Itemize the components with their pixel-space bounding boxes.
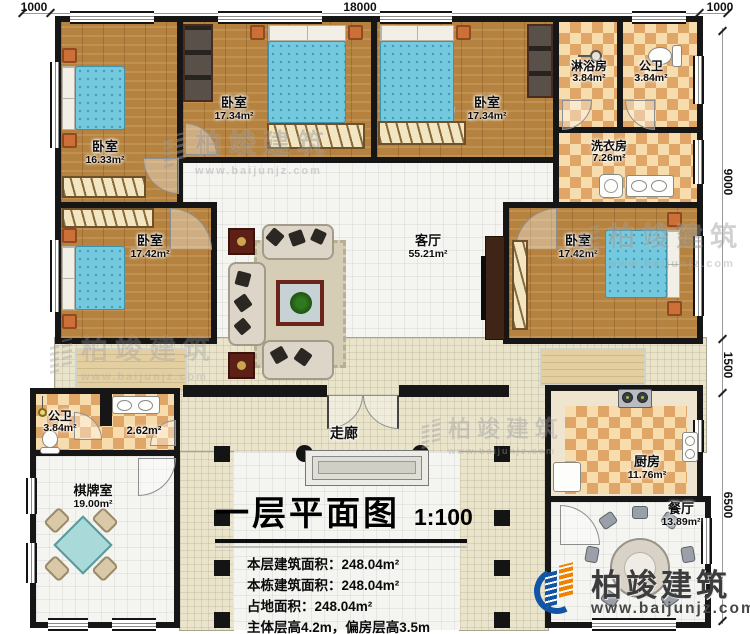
sink-basin (138, 400, 153, 411)
nightstand (456, 25, 471, 40)
tv-cabinet (485, 236, 505, 340)
title-rule-thin (215, 546, 467, 548)
window (693, 56, 704, 104)
nightstand (348, 25, 363, 40)
room-area: 16.33m² (60, 155, 150, 167)
title-block: 一层平面图 1:100 本层建筑面积：248.04m² 本栋建筑面积：248.0… (215, 486, 477, 634)
dimension-line-right (722, 28, 723, 624)
label-bedroom-top-right: 卧室 17.34m² (442, 96, 532, 122)
bed-pillows (62, 66, 75, 130)
side-table (228, 228, 255, 255)
plant (290, 292, 312, 314)
stat-building-area: 本栋建筑面积：248.04m² (247, 575, 477, 596)
nightstand (62, 228, 77, 243)
sink-basin (685, 436, 695, 446)
room-name: 餐厅 (638, 502, 724, 517)
window (218, 11, 322, 24)
label-bedroom-top-left: 卧室 16.33m² (60, 140, 150, 166)
dim-top-right: 1000 (700, 0, 740, 14)
window (380, 11, 452, 24)
room-area: 3.84m² (556, 73, 622, 85)
window (70, 11, 154, 24)
window (50, 240, 61, 312)
label-bath-left: 公卫 3.84m² (34, 410, 86, 435)
label-kitchen: 厨房 11.76m² (602, 455, 692, 481)
sink-basin (631, 180, 647, 192)
fridge (553, 462, 581, 492)
wardrobe (62, 176, 146, 198)
bed-pillows (667, 230, 680, 298)
window (48, 618, 88, 631)
toilet-tank (40, 447, 60, 454)
room-area: 3.84m² (621, 73, 681, 85)
stat-floor-area: 本层建筑面积：248.04m² (247, 554, 477, 575)
stove-burner (622, 392, 633, 403)
nightstand (667, 301, 682, 316)
bed-pillows (62, 246, 75, 310)
dim-right-9000: 9000 (721, 162, 735, 202)
stat-footprint-area: 占地面积：248.04m² (247, 596, 477, 617)
entry-step (318, 461, 416, 474)
brand-logo-icon (533, 562, 587, 622)
bed-pillows (268, 25, 346, 41)
room-name: 卧室 (60, 140, 150, 155)
room-name: 走廊 (315, 426, 373, 442)
room-area: 17.34m² (189, 111, 279, 123)
room-name: 卧室 (533, 234, 623, 249)
porch-column (214, 446, 230, 462)
wall-living-south-right (399, 385, 509, 397)
porch-column (494, 612, 510, 628)
nightstand (250, 25, 265, 40)
porch-column (494, 510, 510, 526)
label-bedroom-mid-left: 卧室 17.42m² (105, 234, 195, 260)
room-area: 11.76m² (602, 470, 692, 482)
logo-swoosh (528, 562, 586, 620)
room-area: 17.34m² (442, 111, 532, 123)
sink-basin (117, 400, 132, 411)
entry-steps (305, 450, 429, 486)
bed-mattress (75, 66, 125, 130)
label-shower: 淋浴房 3.84m² (556, 60, 622, 85)
label-dining: 餐厅 13.89m² (638, 502, 724, 528)
porch-column (494, 446, 510, 462)
title-rule-thick (215, 539, 467, 543)
terrace-deck-left (75, 348, 187, 392)
label-bedroom-top-middle: 卧室 17.34m² (189, 96, 279, 122)
room-area: 3.84m² (34, 423, 86, 435)
cabinet (527, 24, 553, 98)
nightstand (667, 212, 682, 227)
room-name: 棋牌室 (48, 484, 138, 499)
bed-mattress (268, 41, 346, 123)
window (693, 140, 704, 184)
tv (481, 256, 486, 320)
room-name: 卧室 (442, 96, 532, 111)
room-name: 客厅 (383, 234, 473, 249)
wardrobe (62, 208, 154, 228)
brand-url: www.baijunjz.com (591, 600, 750, 618)
nightstand (62, 314, 77, 329)
room-area: 13.89m² (638, 517, 724, 529)
room-area: 7.26m² (574, 153, 644, 165)
room-name: 卧室 (189, 96, 279, 111)
side-table (228, 352, 255, 379)
window (26, 543, 37, 583)
light-cord (42, 396, 43, 408)
window (693, 236, 704, 316)
label-corridor: 走廊 (315, 426, 373, 442)
room-area: 55.21m² (383, 249, 473, 261)
bed-pillows (380, 25, 454, 41)
label-living: 客厅 55.21m² (383, 234, 473, 260)
window (112, 618, 156, 631)
label-bedroom-mid-right: 卧室 17.42m² (533, 234, 623, 260)
stove-burner (637, 392, 648, 403)
logo-tower-orange (559, 562, 573, 597)
room-area: 2.62m² (118, 425, 170, 437)
room-area: 19.00m² (48, 499, 138, 511)
window (632, 11, 686, 24)
shower-arm (578, 55, 592, 57)
room-name: 卧室 (105, 234, 195, 249)
porch-column (494, 560, 510, 576)
label-laundry: 洗衣房 7.26m² (574, 140, 644, 165)
wardrobe (378, 121, 466, 145)
dim-right-1500: 1500 (721, 345, 735, 385)
plan-scale: 1:100 (414, 504, 473, 531)
stat-heights: 主体层高4.2m，偏房层高3.5m (247, 617, 477, 634)
wall-living-south-left (183, 385, 327, 397)
brand-logo: 柏竣建筑 www.baijunjz.com (533, 558, 745, 628)
floor-plan: 1000 18000 1000 9000 1500 6500 (0, 0, 750, 634)
nightstand (62, 48, 77, 63)
label-bath-top: 公卫 3.84m² (621, 60, 681, 85)
brand-name: 柏竣建筑 (591, 560, 731, 605)
window (26, 478, 37, 514)
logo-tower-blue (545, 571, 557, 608)
window (50, 62, 61, 148)
dim-top-left: 1000 (14, 0, 54, 14)
room-area: 17.42m² (533, 249, 623, 261)
terrace-deck-right (540, 348, 646, 386)
room-name: 厨房 (602, 455, 692, 470)
label-chess: 棋牌室 19.00m² (48, 484, 138, 510)
wall-bath-divider (100, 392, 112, 426)
plan-title: 一层平面图 (215, 486, 400, 535)
wardrobe (512, 240, 528, 330)
cabinet (183, 24, 213, 102)
sink-basin (651, 180, 667, 192)
wardrobe (267, 123, 365, 149)
label-washroom: 2.62m² (118, 425, 170, 437)
room-area: 17.42m² (105, 249, 195, 261)
washing-machine-door (604, 179, 618, 193)
